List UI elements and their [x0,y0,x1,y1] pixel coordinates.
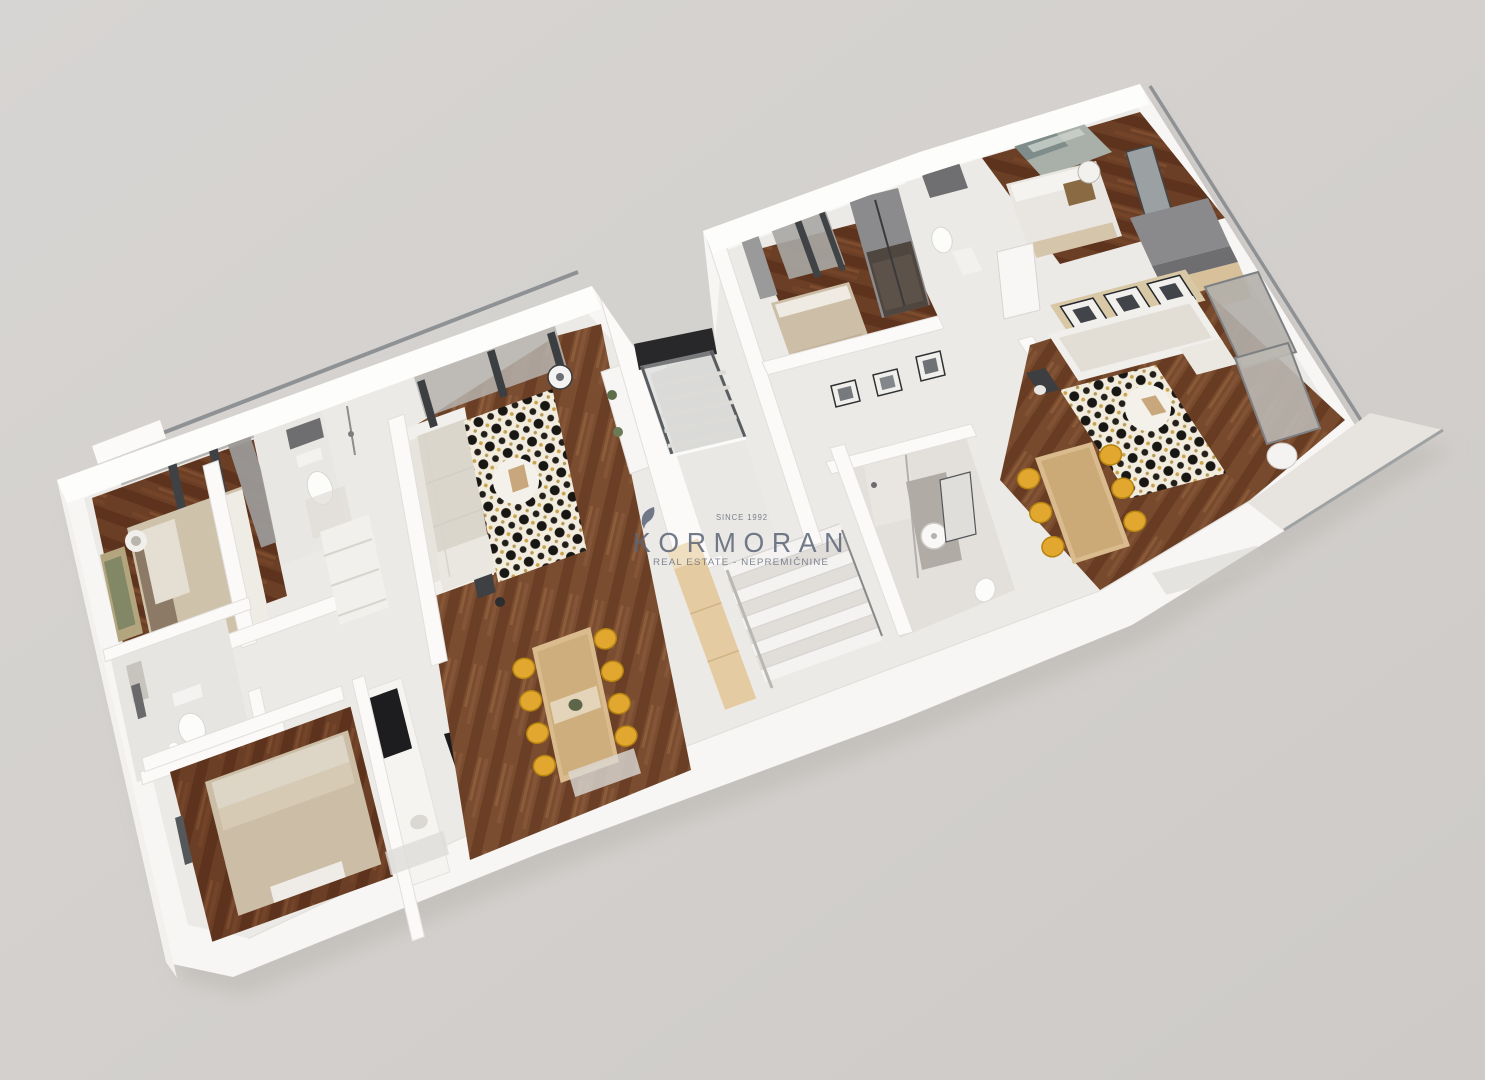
svg-text:KORMORAN: KORMORAN [633,527,851,558]
svg-text:SINCE 1992: SINCE 1992 [716,512,768,522]
svg-text:REAL ESTATE - NEPREMIČNINE: REAL ESTATE - NEPREMIČNINE [653,557,829,568]
